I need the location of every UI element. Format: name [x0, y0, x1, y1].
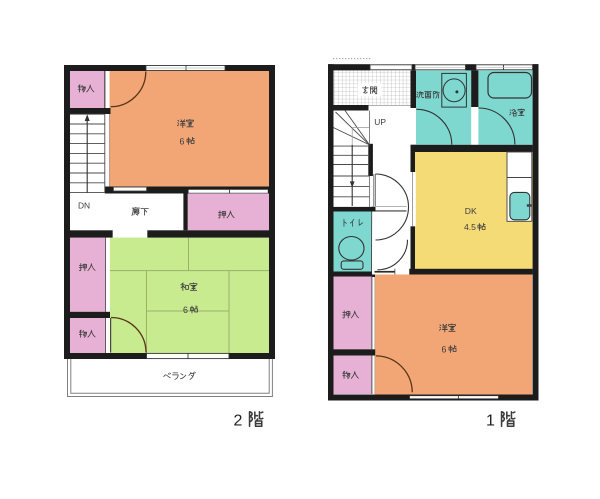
svg-text:6: 6 — [180, 136, 185, 146]
svg-text:DK: DK — [465, 206, 477, 216]
svg-text:1: 1 — [486, 413, 495, 430]
svg-text:6: 6 — [442, 344, 447, 354]
svg-text:2: 2 — [234, 413, 243, 430]
svg-text:UP: UP — [374, 117, 386, 127]
svg-text:DN: DN — [78, 200, 90, 210]
svg-text:4.5: 4.5 — [464, 222, 476, 232]
svg-text:6: 6 — [183, 305, 188, 315]
